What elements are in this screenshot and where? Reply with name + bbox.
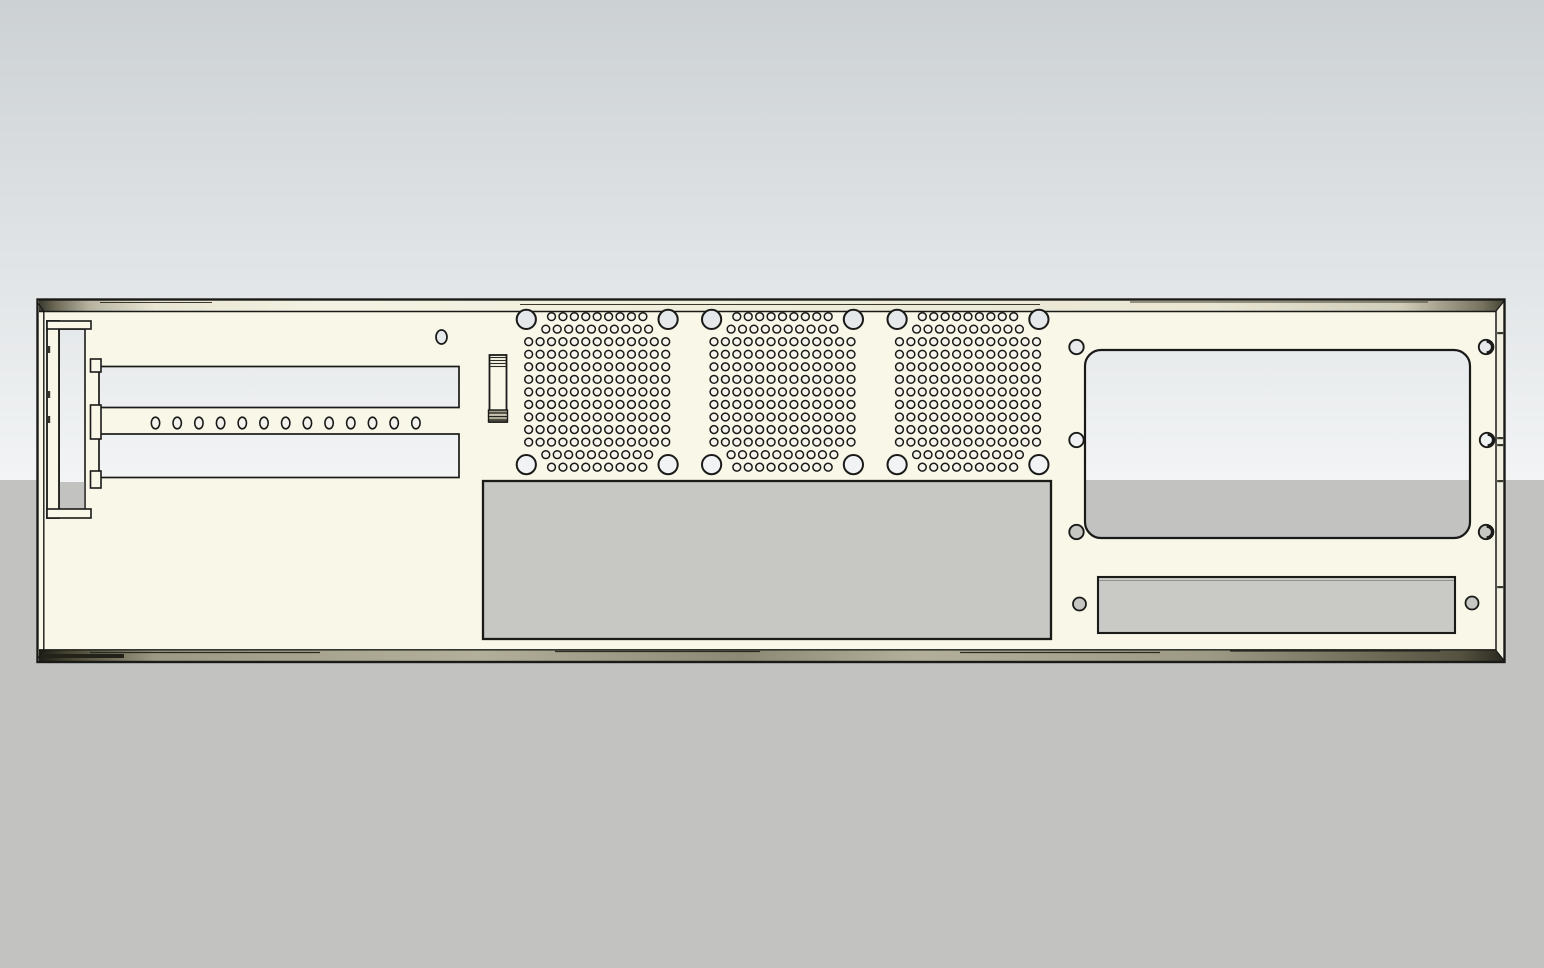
vent-hole — [767, 388, 775, 396]
vent-hole — [953, 388, 961, 396]
vent-hole — [947, 451, 955, 459]
vent-hole — [756, 413, 764, 421]
vent-hole — [930, 313, 938, 321]
vent-hole — [650, 438, 658, 446]
vent-hole — [790, 388, 798, 396]
vent-hole — [616, 438, 624, 446]
vent-hole — [987, 426, 995, 434]
vent-hole — [628, 363, 636, 371]
vent-hole — [722, 388, 730, 396]
slot-cutout-2 — [99, 434, 459, 478]
vent-hole — [582, 363, 590, 371]
screw-strip-hole — [303, 417, 311, 429]
cad-viewport[interactable] — [0, 0, 1544, 968]
slot-cutout-1 — [99, 367, 459, 408]
vent-hole — [570, 438, 578, 446]
fan-corner-hole — [1029, 310, 1048, 329]
vent-hole — [790, 350, 798, 358]
vent-hole — [987, 413, 995, 421]
vent-hole — [662, 375, 670, 383]
vent-hole — [987, 401, 995, 409]
vent-hole — [593, 438, 601, 446]
vent-hole — [976, 350, 984, 358]
vent-hole — [941, 350, 949, 358]
vent-hole — [987, 463, 995, 471]
vent-hole — [1010, 463, 1018, 471]
vent-hole — [756, 388, 764, 396]
vent-hole — [801, 363, 809, 371]
vent-hole — [896, 388, 904, 396]
vent-hole — [1021, 388, 1029, 396]
vent-hole — [767, 350, 775, 358]
vent-hole — [784, 325, 792, 333]
vent-hole — [650, 413, 658, 421]
vent-hole — [801, 375, 809, 383]
vent-hole — [790, 313, 798, 321]
vent-hole — [733, 363, 741, 371]
vent-hole — [779, 463, 787, 471]
vent-hole — [525, 401, 533, 409]
vent-hole — [733, 313, 741, 321]
vent-hole — [1033, 338, 1041, 346]
vent-hole — [548, 463, 556, 471]
vent-hole — [536, 401, 544, 409]
vent-hole — [1015, 451, 1023, 459]
vent-hole — [924, 451, 932, 459]
screw-strip-hole — [282, 417, 290, 429]
bracket-step-tab — [91, 405, 102, 439]
vent-hole — [650, 375, 658, 383]
fan-corner-hole — [517, 455, 536, 474]
vent-hole — [767, 363, 775, 371]
vent-hole — [639, 313, 647, 321]
screw-strip-hole — [173, 417, 181, 429]
vent-hole — [616, 350, 624, 358]
vent-hole — [1010, 401, 1018, 409]
fan-corner-hole — [517, 310, 536, 329]
vent-hole — [998, 388, 1006, 396]
vent-hole — [576, 325, 584, 333]
vent-hole — [813, 313, 821, 321]
vent-hole — [1010, 338, 1018, 346]
vent-hole — [958, 451, 966, 459]
vent-hole — [576, 451, 584, 459]
vent-hole — [847, 413, 855, 421]
vent-hole — [918, 313, 926, 321]
vent-hole — [722, 363, 730, 371]
vent-hole — [936, 325, 944, 333]
vent-hole — [819, 325, 827, 333]
vent-hole — [796, 451, 804, 459]
vent-hole — [801, 401, 809, 409]
vent-hole — [733, 388, 741, 396]
vent-hole — [744, 388, 752, 396]
vent-hole — [565, 325, 573, 333]
vent-hole — [525, 438, 533, 446]
vent-hole — [559, 413, 567, 421]
vent-hole — [722, 375, 730, 383]
vent-hole — [610, 451, 618, 459]
vent-hole — [525, 350, 533, 358]
vent-hole — [605, 375, 613, 383]
vent-hole — [767, 401, 775, 409]
vent-hole — [896, 413, 904, 421]
vent-hole — [744, 350, 752, 358]
vent-hole — [582, 338, 590, 346]
fan-corner-hole — [888, 310, 907, 329]
vent-hole — [779, 313, 787, 321]
fan-corner-hole — [702, 310, 721, 329]
vent-hole — [813, 375, 821, 383]
vent-hole — [727, 325, 735, 333]
vent-hole — [639, 363, 647, 371]
vent-hole — [993, 325, 1001, 333]
vent-hole — [570, 463, 578, 471]
vent-hole — [710, 401, 718, 409]
vent-hole — [593, 413, 601, 421]
vent-hole — [918, 338, 926, 346]
aux-screw-hole — [1466, 597, 1479, 610]
vent-hole — [593, 388, 601, 396]
vent-hole — [953, 375, 961, 383]
vent-hole — [918, 463, 926, 471]
vent-hole — [639, 438, 647, 446]
vent-hole — [976, 388, 984, 396]
vent-hole — [756, 463, 764, 471]
vent-hole — [813, 463, 821, 471]
vent-hole — [976, 363, 984, 371]
vent-hole — [525, 363, 533, 371]
vent-hole — [976, 338, 984, 346]
vent-hole — [941, 388, 949, 396]
vent-hole — [1033, 426, 1041, 434]
right-edge-tick — [1497, 332, 1503, 334]
vent-hole — [605, 363, 613, 371]
vent-hole — [616, 426, 624, 434]
vent-hole — [628, 413, 636, 421]
vent-hole — [847, 438, 855, 446]
vent-hole — [639, 463, 647, 471]
screw-strip-hole — [368, 417, 376, 429]
vent-hole — [993, 451, 1001, 459]
vent-hole — [836, 426, 844, 434]
vent-hole — [790, 375, 798, 383]
bracket-bottom-cap — [47, 509, 91, 518]
vent-hole — [964, 463, 972, 471]
vent-hole — [824, 401, 832, 409]
vent-hole — [536, 363, 544, 371]
vent-hole — [998, 363, 1006, 371]
vent-hole — [964, 338, 972, 346]
bracket-step-tab — [91, 471, 102, 488]
vent-hole — [582, 350, 590, 358]
vent-hole — [813, 338, 821, 346]
vent-hole — [548, 363, 556, 371]
vent-hole — [790, 338, 798, 346]
vent-hole — [930, 413, 938, 421]
vent-hole — [830, 451, 838, 459]
vent-hole — [553, 451, 561, 459]
vent-hole — [570, 313, 578, 321]
aux-cutout — [1098, 577, 1455, 633]
bracket-step-tab — [91, 359, 102, 372]
vent-hole — [599, 325, 607, 333]
vent-hole — [1010, 438, 1018, 446]
vent-hole — [941, 426, 949, 434]
vent-hole — [662, 438, 670, 446]
vent-hole — [767, 426, 775, 434]
vent-hole — [801, 388, 809, 396]
vent-hole — [796, 325, 804, 333]
fan-corner-hole — [659, 455, 678, 474]
vent-hole — [559, 363, 567, 371]
vent-hole — [739, 451, 747, 459]
vent-hole — [930, 438, 938, 446]
vent-hole — [987, 350, 995, 358]
vent-hole — [593, 375, 601, 383]
vent-hole — [570, 413, 578, 421]
vent-hole — [722, 426, 730, 434]
vent-hole — [847, 388, 855, 396]
vent-hole — [918, 413, 926, 421]
vent-hole — [548, 350, 556, 358]
vent-hole — [628, 375, 636, 383]
vent-hole — [779, 401, 787, 409]
vent-hole — [553, 325, 561, 333]
vent-hole — [1033, 350, 1041, 358]
vent-hole — [662, 350, 670, 358]
vent-hole — [998, 463, 1006, 471]
vent-hole — [1033, 363, 1041, 371]
vent-hole — [650, 350, 658, 358]
vent-hole — [727, 451, 735, 459]
screw-strip-hole — [325, 417, 333, 429]
vent-hole — [801, 338, 809, 346]
vent-hole — [987, 313, 995, 321]
vent-hole — [622, 325, 630, 333]
vent-hole — [536, 388, 544, 396]
vent-hole — [662, 413, 670, 421]
aux-screw-hole — [1073, 598, 1086, 611]
vent-hole — [628, 438, 636, 446]
vent-hole — [976, 426, 984, 434]
vent-hole — [525, 388, 533, 396]
vent-hole — [981, 451, 989, 459]
vent-hole — [964, 413, 972, 421]
vent-hole — [1004, 325, 1012, 333]
vent-hole — [773, 325, 781, 333]
vent-hole — [1021, 338, 1029, 346]
vent-hole — [801, 350, 809, 358]
io-screw-hole — [1069, 525, 1083, 539]
vent-hole — [813, 363, 821, 371]
vent-hole — [722, 438, 730, 446]
vent-hole — [1033, 375, 1041, 383]
vent-hole — [767, 413, 775, 421]
right-edge-tick — [1497, 437, 1503, 439]
vent-hole — [710, 363, 718, 371]
vent-hole — [536, 350, 544, 358]
vent-hole — [779, 363, 787, 371]
vent-hole — [987, 388, 995, 396]
vent-hole — [559, 463, 567, 471]
vent-hole — [582, 401, 590, 409]
vent-hole — [628, 338, 636, 346]
vent-hole — [616, 363, 624, 371]
vent-hole — [650, 363, 658, 371]
vent-hole — [628, 401, 636, 409]
bracket-top-cap — [47, 321, 91, 329]
vent-hole — [953, 350, 961, 358]
vent-hole — [525, 413, 533, 421]
vent-hole — [847, 363, 855, 371]
vent-hole — [739, 325, 747, 333]
vent-hole — [1021, 401, 1029, 409]
vent-hole — [813, 401, 821, 409]
vent-hole — [722, 413, 730, 421]
vent-hole — [593, 350, 601, 358]
vent-hole — [599, 451, 607, 459]
vent-hole — [559, 401, 567, 409]
vent-hole — [970, 451, 978, 459]
vent-hole — [836, 350, 844, 358]
vent-hole — [582, 426, 590, 434]
vent-hole — [1033, 388, 1041, 396]
io-screw-hole — [1069, 433, 1083, 447]
vent-hole — [953, 338, 961, 346]
io-window-ground — [1085, 480, 1470, 538]
vent-hole — [570, 375, 578, 383]
vent-hole — [987, 338, 995, 346]
vent-hole — [582, 413, 590, 421]
vent-hole — [930, 426, 938, 434]
vent-hole — [525, 426, 533, 434]
vent-hole — [998, 338, 1006, 346]
vent-hole — [941, 438, 949, 446]
vent-hole — [964, 388, 972, 396]
vent-hole — [559, 388, 567, 396]
vent-hole — [896, 363, 904, 371]
vent-hole — [779, 375, 787, 383]
vent-hole — [976, 401, 984, 409]
vent-hole — [941, 401, 949, 409]
vent-hole — [756, 350, 764, 358]
vent-hole — [998, 350, 1006, 358]
vent-hole — [548, 438, 556, 446]
vent-hole — [756, 363, 764, 371]
cad-canvas[interactable] — [0, 0, 1544, 968]
vent-hole — [981, 325, 989, 333]
vent-hole — [548, 388, 556, 396]
vent-hole — [650, 388, 658, 396]
vent-hole — [836, 388, 844, 396]
vent-hole — [930, 463, 938, 471]
vent-hole — [801, 413, 809, 421]
vent-hole — [722, 338, 730, 346]
vent-hole — [639, 401, 647, 409]
vent-hole — [918, 388, 926, 396]
vent-hole — [662, 363, 670, 371]
vent-hole — [1021, 375, 1029, 383]
io-window-ground-clip — [1085, 480, 1470, 538]
vent-hole — [616, 375, 624, 383]
vent-hole — [976, 375, 984, 383]
vent-hole — [824, 375, 832, 383]
vent-hole — [605, 426, 613, 434]
vent-hole — [761, 451, 769, 459]
vent-hole — [824, 350, 832, 358]
vent-hole — [976, 413, 984, 421]
vent-hole — [918, 350, 926, 358]
vent-hole — [998, 413, 1006, 421]
vent-hole — [605, 350, 613, 358]
fan-corner-hole — [1029, 455, 1048, 474]
vent-hole — [662, 338, 670, 346]
vent-hole — [710, 438, 718, 446]
vent-hole — [924, 325, 932, 333]
vent-hole — [941, 375, 949, 383]
vent-hole — [559, 338, 567, 346]
fan-corner-hole — [659, 310, 678, 329]
vent-hole — [896, 338, 904, 346]
vent-hole — [536, 413, 544, 421]
vent-hole — [836, 401, 844, 409]
vent-hole — [1033, 401, 1041, 409]
vent-hole — [953, 401, 961, 409]
vent-hole — [756, 401, 764, 409]
vent-hole — [907, 401, 915, 409]
vent-hole — [761, 325, 769, 333]
vent-hole — [824, 363, 832, 371]
vent-hole — [836, 363, 844, 371]
vent-hole — [824, 413, 832, 421]
bracket-bar-tick — [48, 391, 50, 398]
vent-hole — [918, 375, 926, 383]
right-edge-tick — [1497, 444, 1503, 446]
vent-hole — [616, 463, 624, 471]
vent-hole — [896, 438, 904, 446]
vent-hole — [536, 375, 544, 383]
screw-strip-hole — [260, 417, 268, 429]
screw-strip-hole — [151, 417, 159, 429]
vent-hole — [744, 463, 752, 471]
screw-strip-hole — [390, 417, 398, 429]
vent-hole — [582, 375, 590, 383]
vent-hole — [536, 438, 544, 446]
vent-hole — [733, 426, 741, 434]
vent-hole — [779, 413, 787, 421]
vent-hole — [570, 338, 578, 346]
vent-hole — [633, 451, 641, 459]
vent-hole — [616, 313, 624, 321]
vent-hole — [936, 451, 944, 459]
vent-hole — [998, 438, 1006, 446]
vent-hole — [1010, 313, 1018, 321]
vent-hole — [570, 426, 578, 434]
vent-hole — [824, 388, 832, 396]
vent-hole — [633, 325, 641, 333]
vent-hole — [1021, 350, 1029, 358]
vent-hole — [824, 426, 832, 434]
vent-hole — [628, 463, 636, 471]
vent-hole — [605, 338, 613, 346]
vent-hole — [813, 388, 821, 396]
vent-hole — [744, 313, 752, 321]
vent-hole — [913, 451, 921, 459]
bracket-opening-ground — [60, 482, 84, 509]
vent-hole — [918, 401, 926, 409]
vent-hole — [907, 438, 915, 446]
